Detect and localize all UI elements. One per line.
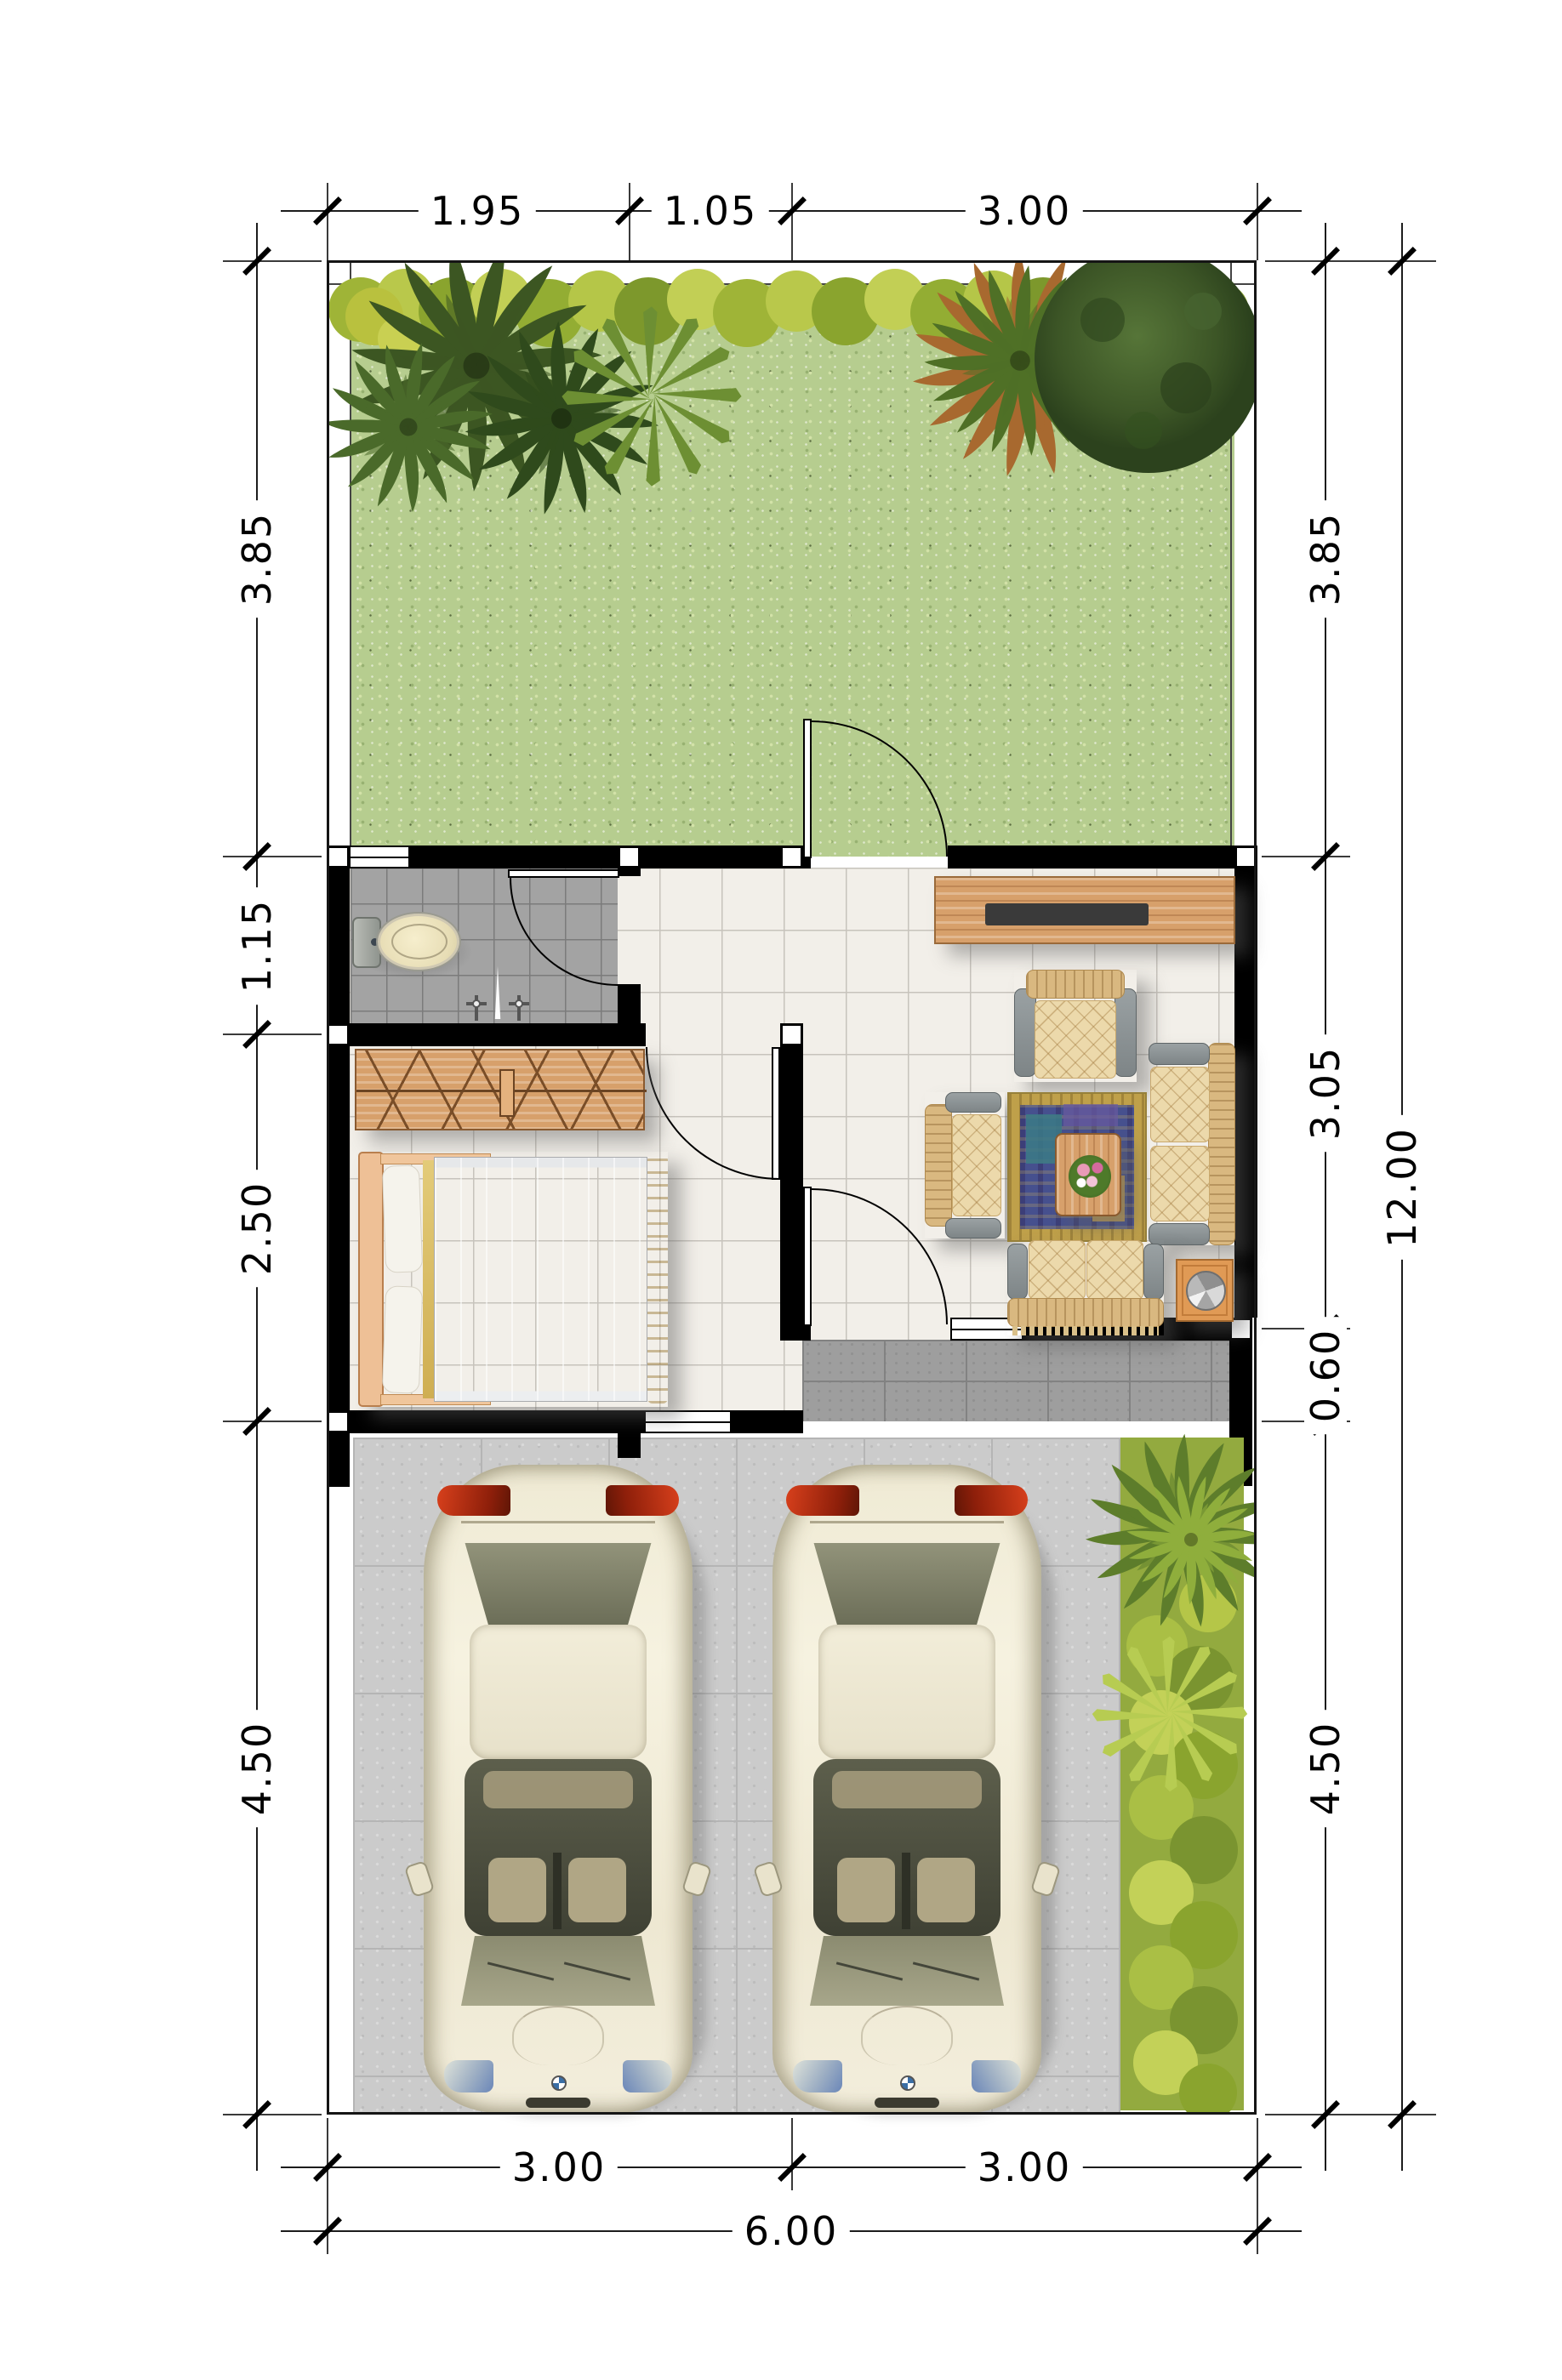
dim-label-right-2: 3.05 [1304, 1034, 1347, 1152]
sofa-armrest [1143, 1244, 1164, 1300]
car-windshield [461, 1936, 655, 2006]
armchair-backrest [925, 1104, 952, 1227]
bed-headboard [358, 1152, 384, 1407]
car-headlight [444, 2060, 493, 2092]
extension-line [223, 260, 322, 262]
toilet-seat-line [391, 924, 448, 959]
sofa-cushion [1150, 1146, 1210, 1221]
lot-boundary-left [327, 260, 329, 2115]
armchair-west [925, 1092, 1005, 1238]
armchair-armrest [1014, 988, 1036, 1077]
front-door-leaf [803, 1187, 812, 1326]
wall-segment [780, 1318, 803, 1341]
armchair-armrest [945, 1092, 1001, 1113]
car-windshield [810, 1936, 1004, 2006]
dim-label-left-4: 4.50 [236, 1710, 278, 1827]
column [327, 1023, 350, 1046]
car-taillight [955, 1485, 1028, 1516]
armchair-cushion [1035, 1000, 1116, 1079]
car-body [424, 1465, 693, 2113]
car-grille [526, 2098, 590, 2108]
sofa-backrest [1208, 1043, 1235, 1245]
sofa-cushion [1029, 1240, 1086, 1300]
wall-segment [618, 868, 641, 876]
dim-label-right-total: 12.00 [1381, 1115, 1423, 1260]
sofa-cushion [1150, 1067, 1210, 1142]
wall-segment [349, 1410, 644, 1433]
tv-screen [985, 903, 1149, 925]
bed-duvet [434, 1157, 647, 1402]
wall-segment [618, 1432, 641, 1458]
car-front-seat [568, 1858, 626, 1922]
extension-line [223, 856, 322, 857]
extension-line [1262, 856, 1350, 857]
bed-pillow [382, 1164, 423, 1273]
faucet-tap-left [466, 995, 487, 1021]
armchair-armrest [945, 1218, 1001, 1238]
flower-bouquet [1069, 1155, 1111, 1198]
garden-vegetation [327, 260, 1257, 858]
sofa-armrest [1149, 1043, 1210, 1065]
car-taillight [786, 1485, 859, 1516]
car-rear-seat [832, 1771, 982, 1808]
car-front-seat [837, 1858, 895, 1922]
extension-line [629, 183, 630, 260]
car-trunk-line [461, 1521, 655, 1523]
window-bathroom [349, 846, 410, 868]
column [327, 1410, 350, 1433]
car-body [772, 1465, 1041, 2113]
car-cabin-glass [465, 1759, 652, 1936]
dim-label-left-3: 2.50 [236, 1170, 278, 1287]
wall-segment [327, 868, 350, 1023]
car-center-console [553, 1853, 562, 1929]
column [780, 1023, 803, 1046]
car-roof [470, 1625, 647, 1759]
car-headlight [623, 2060, 672, 2092]
car-rear-seat [483, 1771, 633, 1808]
column [618, 846, 641, 868]
armchair-backrest [1026, 970, 1125, 999]
car-grille [875, 2098, 939, 2108]
bed-gold-band [423, 1160, 434, 1398]
armchair-armrest [1114, 988, 1137, 1077]
car-hood-crease [512, 2006, 604, 2065]
wall-segment [618, 984, 641, 1023]
sofa-cushion [1086, 1240, 1143, 1300]
sofa-backrest [1007, 1298, 1164, 1327]
back-door-leaf [803, 719, 812, 858]
double-bed [358, 1152, 668, 1407]
car-logo [900, 2075, 915, 2091]
extension-line [327, 183, 328, 260]
car-hood-crease [861, 2006, 953, 2065]
terrace-floor [802, 1340, 1229, 1421]
car-center-console [902, 1853, 910, 1929]
column [327, 846, 350, 868]
wall-segment [780, 1045, 803, 1318]
dim-label-right-4: 4.50 [1304, 1710, 1347, 1827]
armchair-cushion [952, 1114, 1001, 1216]
car-rear-window [461, 1543, 655, 1625]
car-wiper [836, 1962, 903, 1980]
extension-line [791, 2118, 793, 2190]
wall-segment [948, 846, 1234, 868]
car-wiper [487, 1962, 554, 1980]
dim-label-left-1: 3.85 [236, 500, 278, 618]
tv-cabinet [934, 876, 1235, 944]
wardrobe [355, 1049, 645, 1130]
extension-line [223, 1033, 322, 1035]
extension-line [791, 183, 793, 260]
lot-boundary-top [327, 260, 1257, 263]
sofa-south [1007, 1240, 1164, 1335]
lot-boundary-right [1254, 260, 1257, 2115]
extension-line [223, 2114, 322, 2115]
wall-segment [732, 1410, 803, 1433]
car-wiper [564, 1962, 630, 1980]
dim-label-right-3: 0.60 [1304, 1317, 1347, 1434]
car-trunk-line [810, 1521, 1004, 1523]
extension-line [223, 1421, 322, 1422]
car-headlight [793, 2060, 842, 2092]
armchair-north [1014, 970, 1137, 1082]
car-roof [818, 1625, 995, 1759]
wall-segment [640, 846, 780, 868]
wall-segment [349, 1023, 618, 1046]
coffee-table [1055, 1133, 1121, 1216]
car-logo [551, 2075, 567, 2091]
wall-segment [618, 1023, 646, 1046]
car-rear-window [810, 1543, 1004, 1625]
car-cabin-glass [813, 1759, 1000, 1936]
dim-label-bottom-2: 3.00 [966, 2146, 1083, 2189]
rug-pattern-block [1063, 1104, 1118, 1126]
car-front-seat [917, 1858, 975, 1922]
wardrobe-box [499, 1069, 515, 1117]
wall-segment [408, 846, 618, 868]
car-front-seat [488, 1858, 546, 1922]
column [780, 846, 803, 868]
dim-label-bottom-1: 3.00 [500, 2146, 618, 2189]
bathroom-door-leaf [508, 869, 619, 878]
car-left [424, 1465, 693, 2113]
dim-label-top-1: 1.95 [419, 190, 536, 232]
extension-line [1265, 2114, 1436, 2115]
faucet-tap-right [509, 995, 529, 1021]
dim-label-left-2: 1.15 [236, 887, 278, 1005]
window-bedroom [644, 1410, 732, 1433]
metal-bowl [1186, 1271, 1226, 1311]
dim-label-right-1: 3.85 [1304, 500, 1347, 618]
car-wiper [913, 1962, 979, 1980]
sofa-fringe [1012, 1326, 1159, 1335]
lot-boundary-bottom [327, 2112, 1257, 2115]
dim-label-top-3: 3.00 [966, 190, 1083, 232]
car-right [772, 1465, 1041, 2113]
sofa-armrest [1007, 1244, 1028, 1300]
carport-planting-strip [1055, 1433, 1257, 2115]
dim-label-top-2: 1.05 [652, 190, 769, 232]
car-headlight [972, 2060, 1021, 2092]
extension-line [1265, 260, 1436, 262]
dim-label-bottom-total: 6.00 [733, 2210, 850, 2252]
car-taillight [606, 1485, 679, 1516]
bed-pillow [382, 1285, 423, 1393]
car-taillight [437, 1485, 510, 1516]
wall-segment [327, 1432, 350, 1487]
side-table [1176, 1259, 1234, 1322]
extension-line [1257, 183, 1258, 260]
floor-plan-canvas: 1.95 1.05 3.00 3.85 1.15 2.50 4.50 [0, 0, 1562, 2380]
wall-segment [327, 1045, 350, 1410]
bed-gold-ruffle [647, 1155, 668, 1404]
sofa-east [1149, 1043, 1235, 1245]
